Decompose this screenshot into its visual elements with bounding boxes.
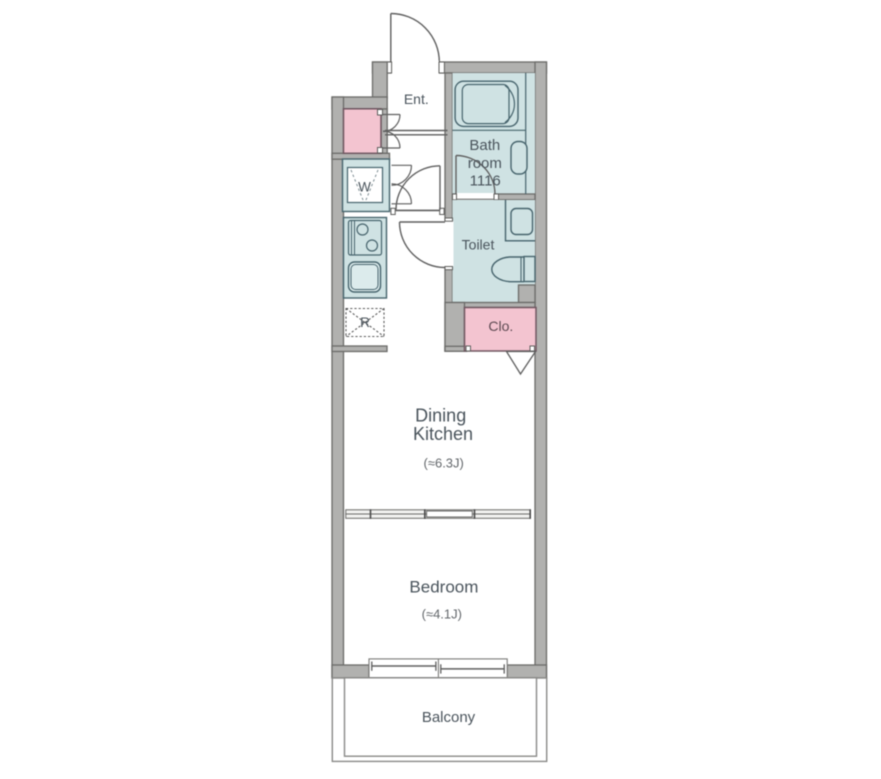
svg-text:1116: 1116 [470, 172, 501, 189]
svg-text:Ent.: Ent. [404, 91, 429, 107]
svg-text:Bedroom: Bedroom [409, 578, 478, 597]
svg-text:W: W [358, 180, 371, 195]
svg-text:(≈4.1J): (≈4.1J) [422, 606, 462, 621]
svg-text:R: R [360, 315, 370, 330]
svg-text:room: room [468, 155, 502, 172]
svg-text:Bath: Bath [469, 137, 500, 154]
svg-text:Kitchen: Kitchen [413, 424, 473, 444]
svg-text:(≈6.3J): (≈6.3J) [424, 455, 464, 470]
svg-text:Balcony: Balcony [422, 709, 476, 726]
svg-text:Toilet: Toilet [462, 237, 495, 253]
svg-text:Dining: Dining [415, 405, 466, 425]
svg-text:Clo.: Clo. [488, 318, 513, 334]
